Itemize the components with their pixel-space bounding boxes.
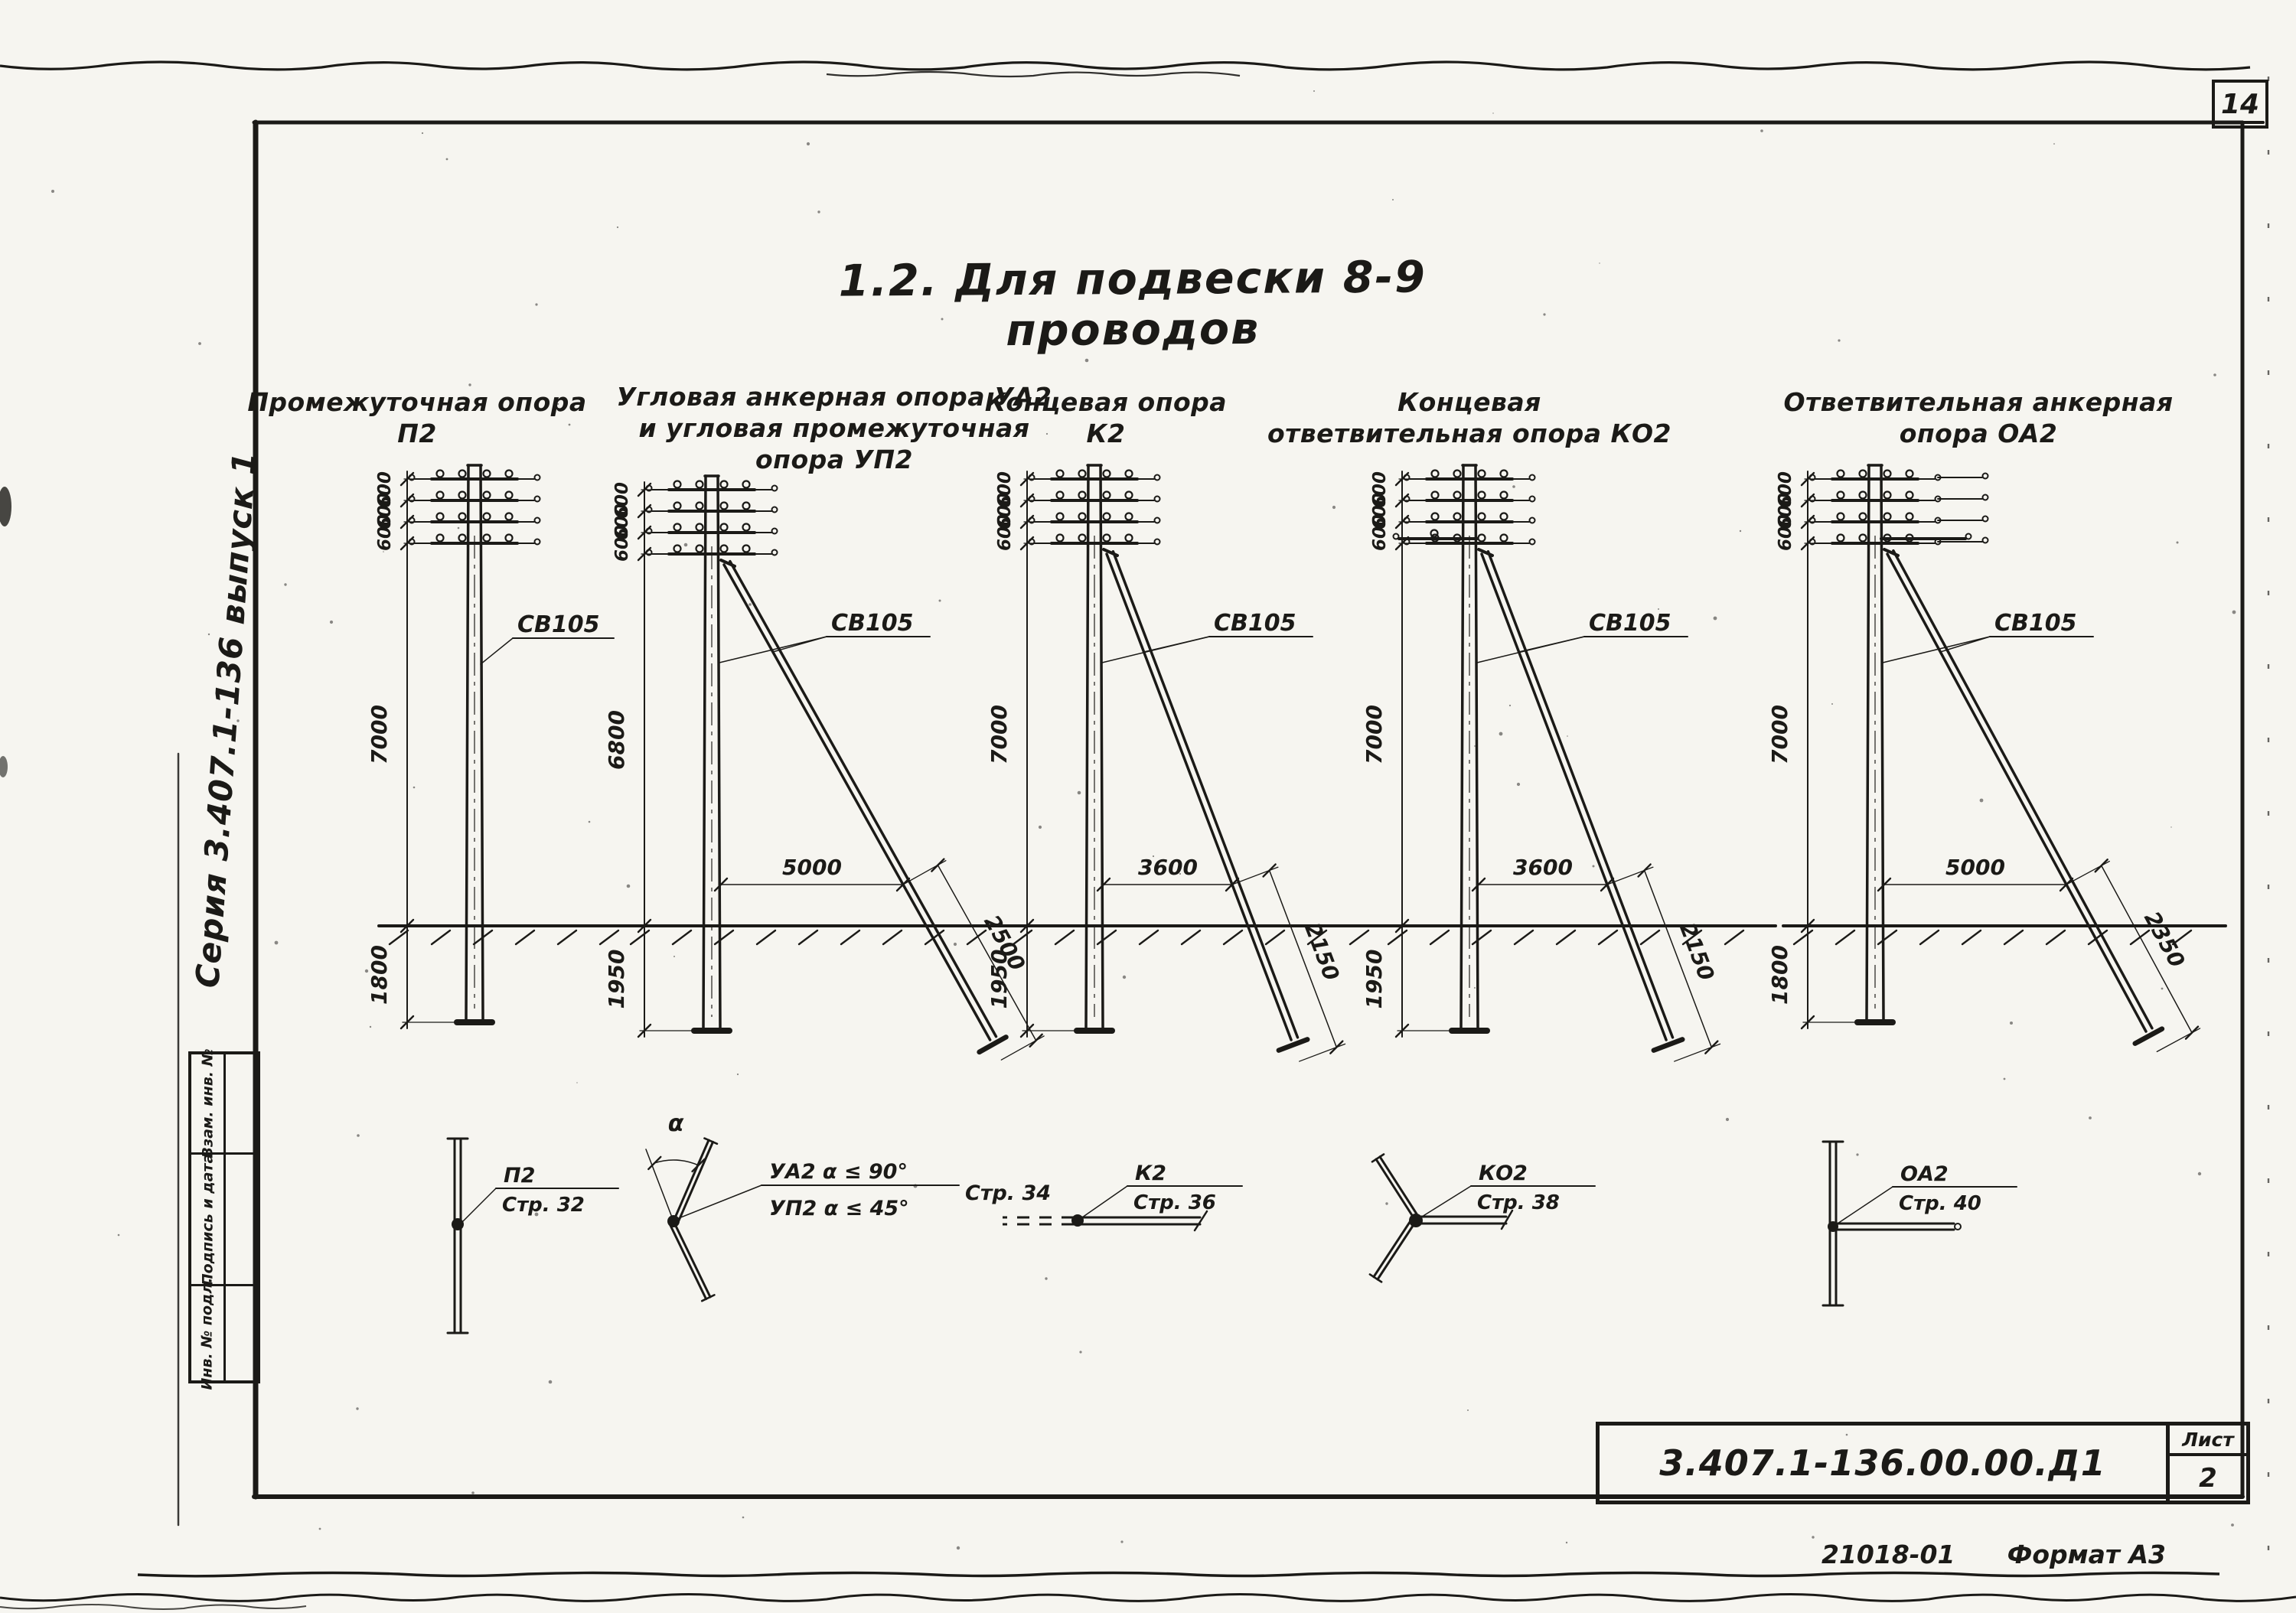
pole-figure-ko2: 6006006007000195036002150СВ105 [1362,465,1776,1061]
strut-offset-dim: 5000 [1945,855,2005,880]
height-dim: 7000 [987,705,1012,764]
stamp-empty-cell [226,1286,257,1380]
height-dim: 7000 [1767,705,1792,764]
strut-offset-dim: 3600 [1513,855,1573,880]
doc-number: 3.407.1-136.00.00.Д1 [1600,1426,2166,1501]
depth-dim: 1950 [1362,950,1387,1009]
sheet-label: Лист [2170,1426,2246,1456]
order-number: 21018-01 [1821,1540,1955,1569]
series-note: Серия 3.407.1-136 выпуск 1 [188,450,263,989]
angle-condition: УА2 α ≤ 90° [769,1160,908,1184]
page-number-box: 14 [2212,80,2268,129]
height-dim: 7000 [1362,705,1387,764]
sheet-title: 1.2. Для подвески 8-9 проводов [781,252,1486,357]
depth-dim: 1950 [604,950,629,1009]
pole-figure-ua2-up2: 6006006006800195050002500СВ105 [604,476,1044,1060]
stamp-label: Подпись и дата [199,1153,216,1286]
stamp-empty-cell [226,1155,257,1284]
scan-blot [0,487,11,526]
plan-page-ref: Стр. 36 [1133,1191,1216,1214]
pole-mark: СВ105 [1589,610,1671,637]
scanned-drawing-sheet: { "sheet": { "page_number": "14", "serie… [0,0,2296,1613]
stamp-column: Взам. инв. № Подпись и дата Инв. № подл. [188,1051,260,1383]
strut-extension-dim: 2350 [2139,908,2190,972]
torn-edge [138,1573,2219,1576]
stamp-cell: Инв. № подл. [191,1286,257,1380]
pole-mark: СВ105 [1994,610,2077,637]
plan-symbol-p2: П2Стр. 32 [448,1139,618,1333]
plan-page-ref: Стр. 40 [1899,1192,1981,1215]
strut-offset-dim: 5000 [782,855,842,880]
pole-mark: СВ105 [517,611,600,638]
plan-code: ОА2 [1900,1162,1949,1186]
plan-code: КО2 [1479,1162,1528,1185]
stamp-label-strip: Инв. № подл. [191,1286,226,1380]
stamp-label-strip: Взам. инв. № [191,1054,226,1152]
format-note: Формат А3 [2007,1540,2166,1569]
crossarm-dim: 600 [1776,514,1795,551]
depth-dim: 1800 [1767,945,1792,1005]
stamp-empty-cell [226,1054,257,1152]
plan-symbol-ua2-up2: αУА2 α ≤ 90°УП2 α ≤ 45°Стр. 34 [646,1110,1051,1301]
page-number: 14 [2221,89,2259,120]
plan-symbol-ko2: КО2Стр. 38 [1370,1154,1595,1282]
plan-page-ref: Стр. 38 [1477,1191,1560,1214]
depth-dim: 1950 [987,950,1012,1009]
strut-extension-dim: 2150 [1300,919,1345,984]
plan-code: П2 [504,1164,535,1188]
height-dim: 6800 [604,710,629,770]
angle-label: α [668,1110,684,1137]
plan-page-ref: Стр. 32 [502,1194,585,1217]
stamp-label: Инв. № подл. [199,1277,216,1390]
torn-edge [827,72,1240,77]
title-block: 3.407.1-136.00.00.Д1 Лист 2 [1596,1422,2250,1504]
plan-page-ref: Стр. 34 [965,1181,1051,1205]
strut-extension-dim: 2150 [1675,919,1720,984]
crossarm-dim: 600 [1370,514,1390,551]
stamp-label: Взам. инв. № [199,1049,216,1158]
plan-code: К2 [1135,1162,1166,1185]
series-note-wrap: Серия 3.407.1-136 выпуск 1 [73,425,379,1014]
torn-edge [0,1595,2296,1602]
plan-symbol-oa2: ОА2Стр. 40 [1823,1142,2017,1305]
pole-figure-oa2: 6006006007000180050002350СВ105 [1767,465,2226,1051]
scan-blot [0,756,8,777]
torn-edge [0,1605,306,1609]
stamp-cell: Подпись и дата [191,1155,257,1286]
sheet-cell: Лист 2 [2166,1426,2246,1501]
crossarm-dim: 600 [995,514,1015,551]
crossarm-dim: 600 [612,525,632,562]
footer-note: 21018-01 Формат А3 [1821,1540,2166,1569]
strut-offset-dim: 3600 [1138,855,1198,880]
angle-condition: УП2 α ≤ 45° [769,1197,909,1220]
pole-figure-k2: 6006006007000195036002150СВ105 [987,465,1401,1061]
pole-figure-p2: 60060060070001800СВ105 [367,465,639,1028]
torn-edge [0,62,2250,70]
pole-mark: СВ105 [1214,610,1296,637]
stamp-label-strip: Подпись и дата [191,1155,226,1284]
sheet-value: 2 [2170,1456,2246,1501]
stamp-cell: Взам. инв. № [191,1054,257,1155]
pole-mark: СВ105 [831,610,914,637]
